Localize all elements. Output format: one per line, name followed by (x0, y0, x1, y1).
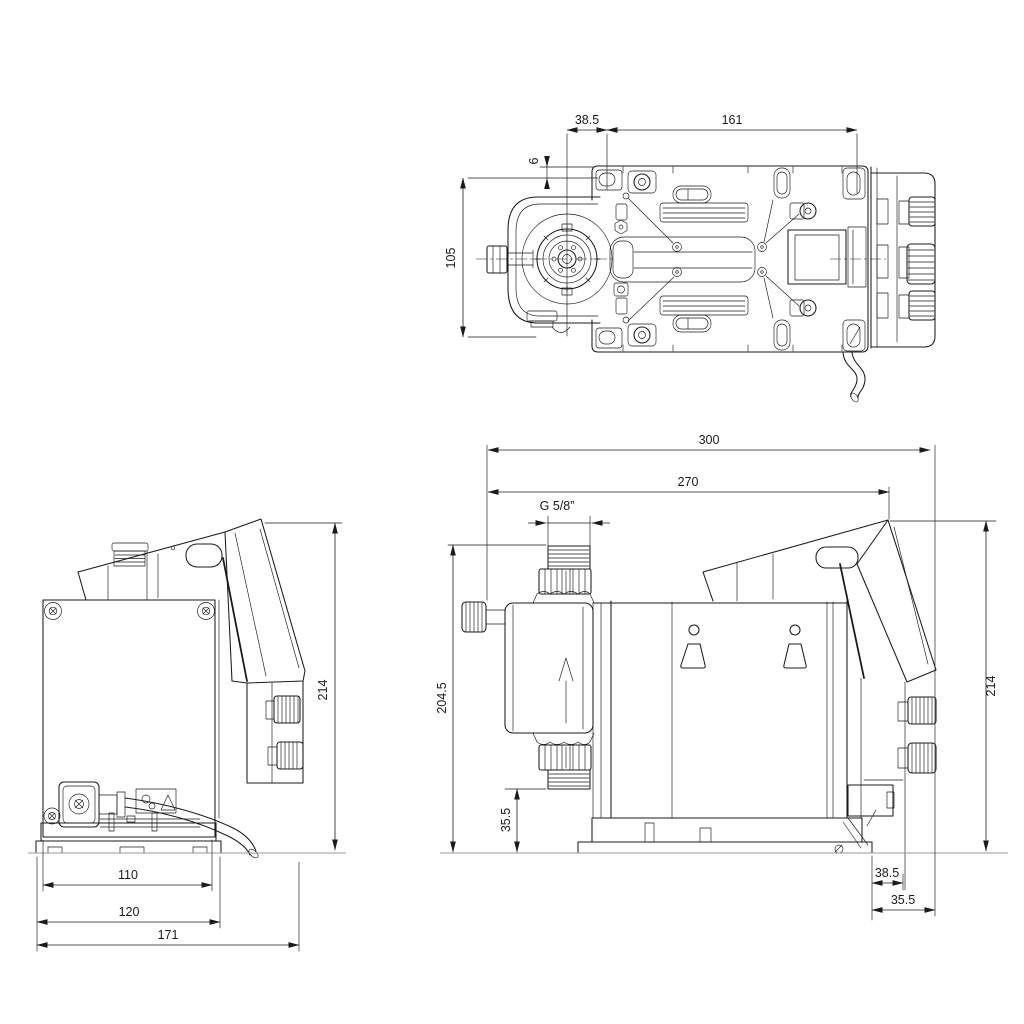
front-view-cable-gland (59, 782, 125, 827)
dim-side-connection-thread: G 5/8” (540, 499, 575, 513)
top-view-pump-head (476, 197, 616, 333)
dim-top-hole-row-spacing: 105 (444, 248, 458, 269)
top-view-power-cable (843, 352, 865, 403)
dim-side-connector-height: 204.5 (435, 682, 449, 713)
dim-front-foot-width: 110 (118, 868, 138, 882)
top-view-mounting-plate (592, 166, 886, 352)
side-view-dimensions: 300 270 G 5/8” 204.5 35.5 214 38.5 35.5 (435, 433, 1008, 920)
top-view-vent-valve (487, 246, 533, 273)
side-view-dosing-head (462, 546, 594, 789)
front-view-power-cable (125, 798, 260, 859)
dim-side-height: 214 (984, 676, 998, 697)
dim-front-depth: 171 (158, 928, 179, 942)
side-view-discharge-fitting (539, 546, 591, 594)
side-view-vent-valve (462, 602, 505, 632)
top-view-dimensions: 38.5 161 6 105 (444, 113, 857, 337)
dim-front-height: 214 (316, 680, 330, 701)
dim-side-rear-hole-offset: 38.5 (875, 866, 899, 880)
top-view-control-cube (843, 167, 935, 403)
dim-side-overall-length: 300 (699, 433, 720, 447)
side-view-control-panel (703, 520, 936, 682)
side-view-rear-connectors (864, 682, 936, 890)
front-view-rear-column (247, 681, 303, 783)
flow-direction-arrow-icon (559, 658, 573, 723)
side-view-suction-fitting (539, 745, 591, 789)
dim-side-rear-overhang: 35.5 (891, 893, 915, 907)
side-view-base (578, 818, 872, 853)
dim-front-base-width: 120 (119, 905, 140, 919)
top-view: 38.5 161 6 105 (444, 113, 935, 403)
front-view-corner-screws (44, 603, 215, 825)
front-view-din-rail (100, 813, 200, 831)
side-view-rear-bracket (835, 785, 894, 853)
dim-top-hole-spacing: 161 (722, 113, 743, 127)
front-view-dimensions: 214 110 120 171 (28, 523, 346, 951)
dim-top-back-offset: 38.5 (575, 113, 599, 127)
side-view-body (592, 601, 862, 818)
dim-side-length-to-panel: 270 (678, 475, 699, 489)
side-view: 300 270 G 5/8” 204.5 35.5 214 38.5 35.5 (435, 433, 1008, 920)
front-view-control-panel (186, 519, 305, 683)
front-view-drive-top (78, 532, 225, 600)
top-view-connector-knobs (899, 197, 935, 320)
front-view: 214 110 120 171 (28, 519, 346, 951)
dim-top-edge-to-hole: 6 (527, 157, 541, 164)
dim-side-connector-clearance: 35.5 (499, 808, 513, 832)
drawing-canvas: 38.5 161 6 105 (0, 0, 1024, 1024)
technical-drawing: 38.5 161 6 105 (0, 0, 1024, 1024)
